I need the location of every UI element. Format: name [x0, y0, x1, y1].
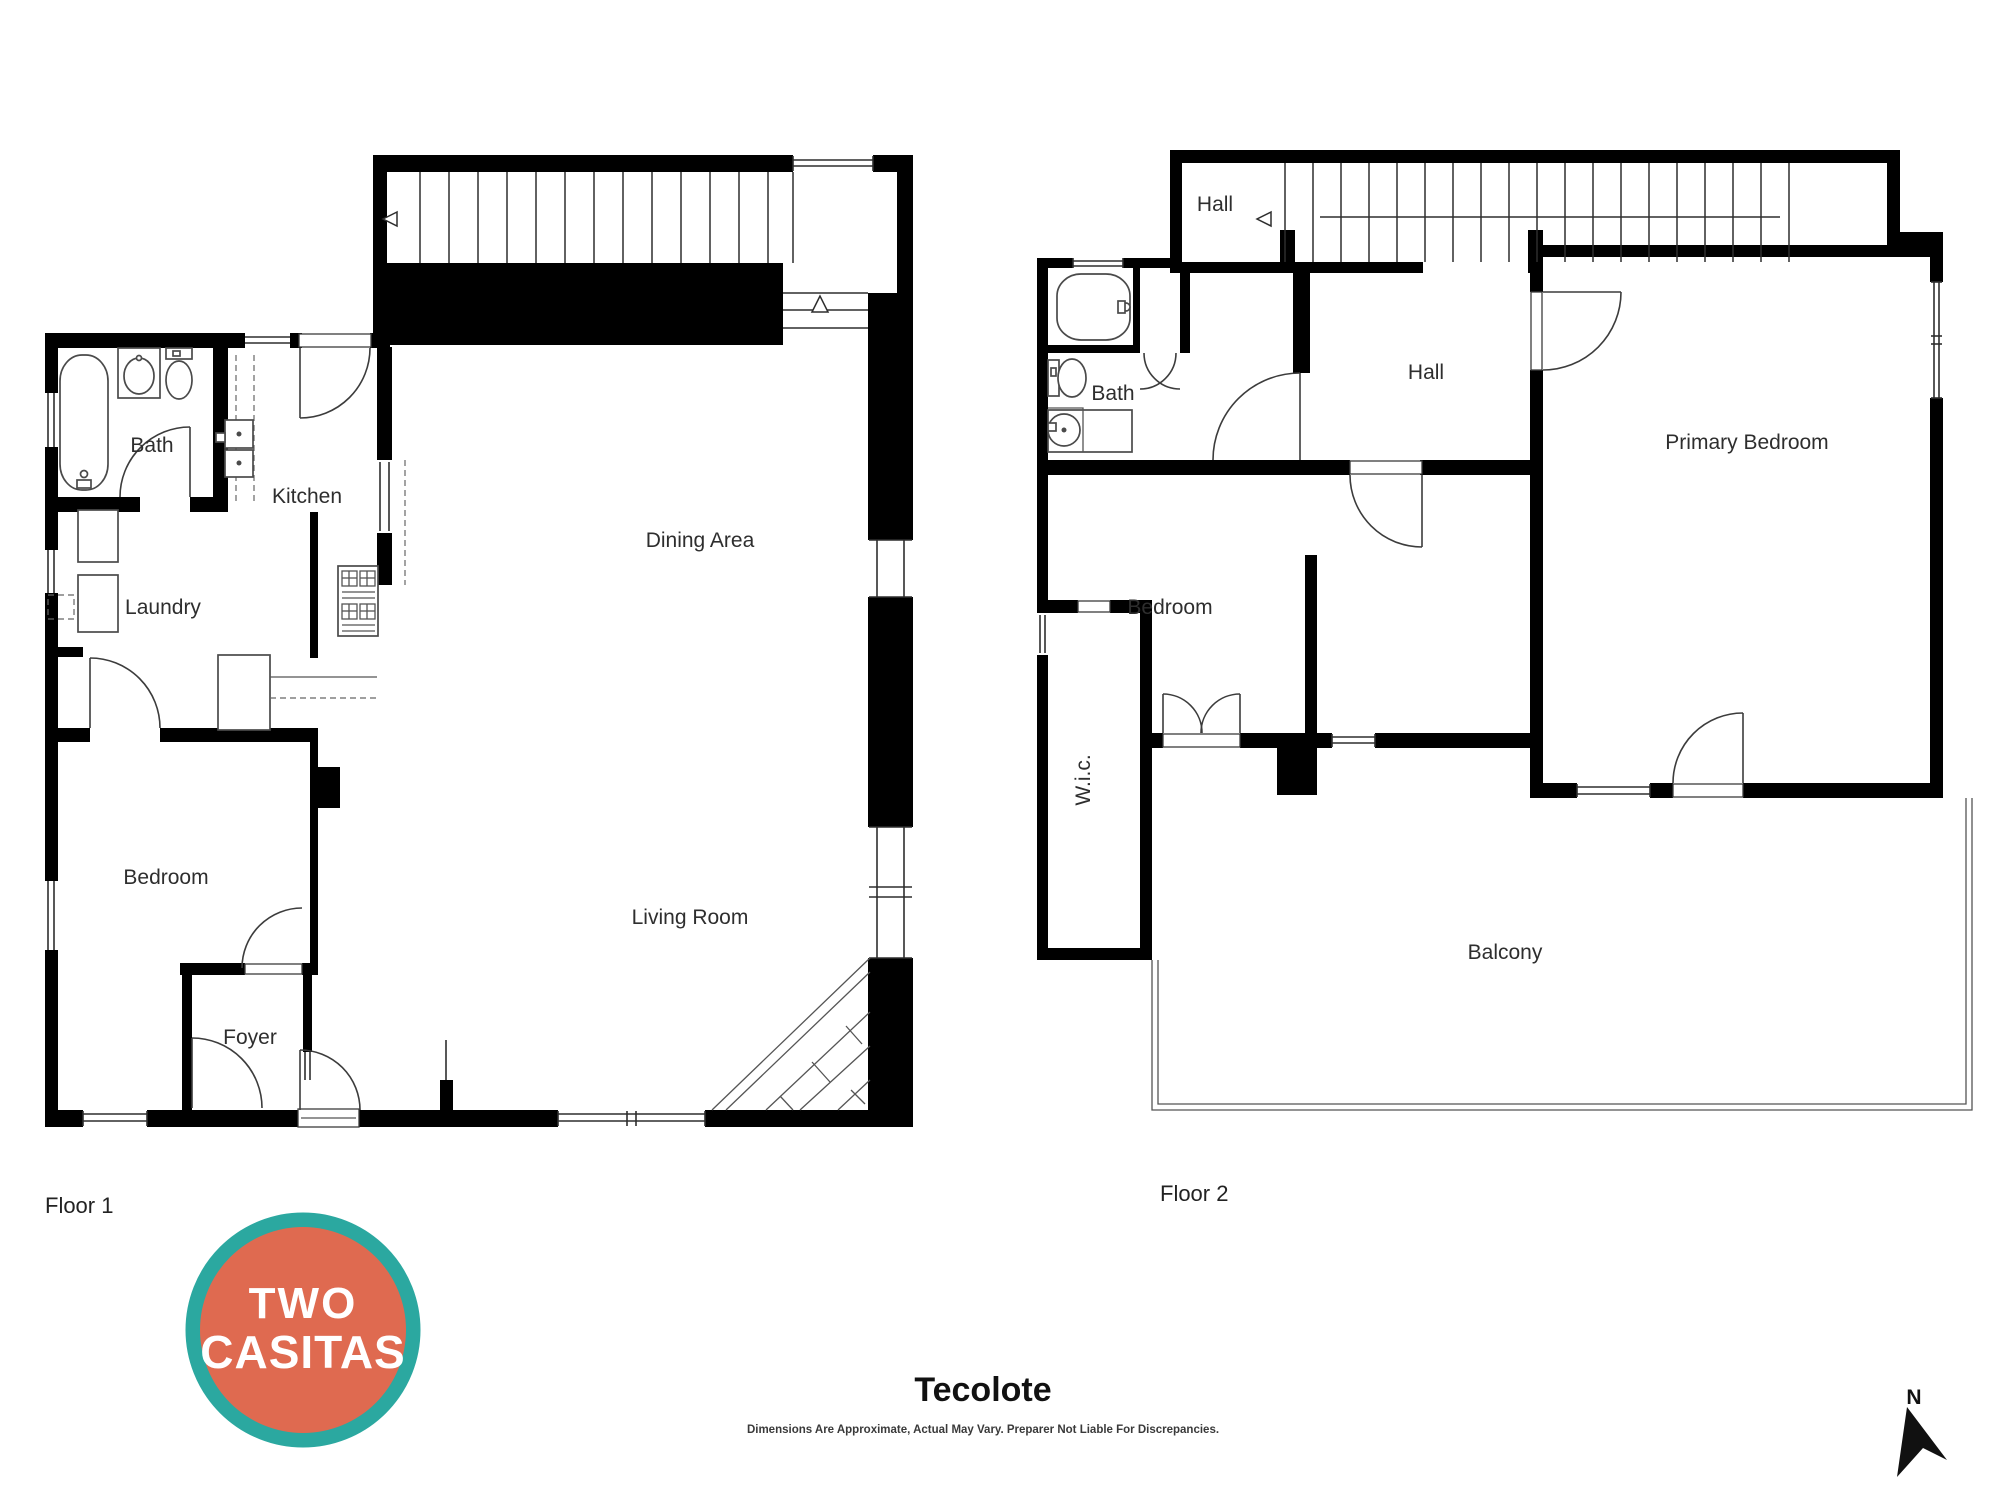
- room-label-foyer: Foyer: [223, 1026, 277, 1049]
- room-label-wic: W.i.c.: [1072, 754, 1095, 805]
- floor1-title: Floor 1: [45, 1193, 113, 1218]
- floorplan-canvas: Bath Kitchen Dining Area Laundry Bedroom…: [0, 0, 2000, 1500]
- room-label-balcony: Balcony: [1468, 941, 1543, 964]
- floor2-fixtures: [1048, 274, 1132, 452]
- sink-icon: [118, 348, 160, 398]
- north-compass: N: [1897, 1386, 1947, 1477]
- north-label: N: [1906, 1386, 1921, 1409]
- room-label-laundry: Laundry: [125, 596, 201, 619]
- toilet-icon: [1048, 359, 1086, 397]
- logo-text-line2: CASITAS: [200, 1326, 406, 1378]
- room-label-kitchen: Kitchen: [272, 485, 342, 508]
- room-label-primary-bedroom: Primary Bedroom: [1665, 431, 1828, 454]
- floor2-title: Floor 2: [1160, 1181, 1228, 1206]
- room-label-bath-f1: Bath: [130, 434, 173, 457]
- sink-icon: [1048, 408, 1132, 452]
- floor2-windows: [1040, 258, 1942, 797]
- room-label-living: Living Room: [632, 906, 749, 929]
- floor1-stairs: [373, 155, 913, 345]
- room-label-bedroom-f2: Bedroom: [1127, 596, 1212, 619]
- room-label-hall: Hall: [1408, 361, 1444, 384]
- footer: Tecolote Dimensions Are Approximate, Act…: [747, 1371, 1219, 1436]
- plan-disclaimer: Dimensions Are Approximate, Actual May V…: [747, 1424, 1219, 1436]
- two-casitas-logo: TWO CASITAS: [193, 1220, 413, 1440]
- plan-title: Tecolote: [914, 1371, 1051, 1409]
- room-label-bath-f2: Bath: [1091, 382, 1134, 405]
- laundry-machines: [48, 510, 118, 632]
- north-arrow-icon: [1897, 1407, 1947, 1477]
- floor2-walls: [1037, 150, 1943, 960]
- floorplan-page: Bath Kitchen Dining Area Laundry Bedroom…: [0, 0, 2000, 1500]
- bathtub-icon: [60, 355, 108, 490]
- room-label-hall-upper: Hall: [1197, 193, 1233, 216]
- floor1-plan: Bath Kitchen Dining Area Laundry Bedroom…: [45, 155, 913, 1218]
- logo-text-line1: TWO: [249, 1279, 358, 1328]
- window-top-landing: [793, 156, 873, 171]
- stove-icon: [338, 566, 378, 636]
- corner-fireplace: [712, 958, 870, 1110]
- stair-direction-arrow-icon: [1257, 212, 1271, 226]
- floor2-plan: Hall Hall Bath Primary Bedroom Bedroom W…: [1037, 150, 1972, 1206]
- balcony-railing: [1152, 798, 1972, 1110]
- room-label-bedroom-f1: Bedroom: [123, 866, 208, 889]
- step-up-arrow-icon: [812, 296, 828, 312]
- room-label-dining: Dining Area: [646, 529, 755, 552]
- bathtub-icon: [1057, 274, 1130, 340]
- floor1-labels: Bath Kitchen Dining Area Laundry Bedroom…: [45, 434, 755, 1218]
- toilet-icon: [166, 348, 192, 399]
